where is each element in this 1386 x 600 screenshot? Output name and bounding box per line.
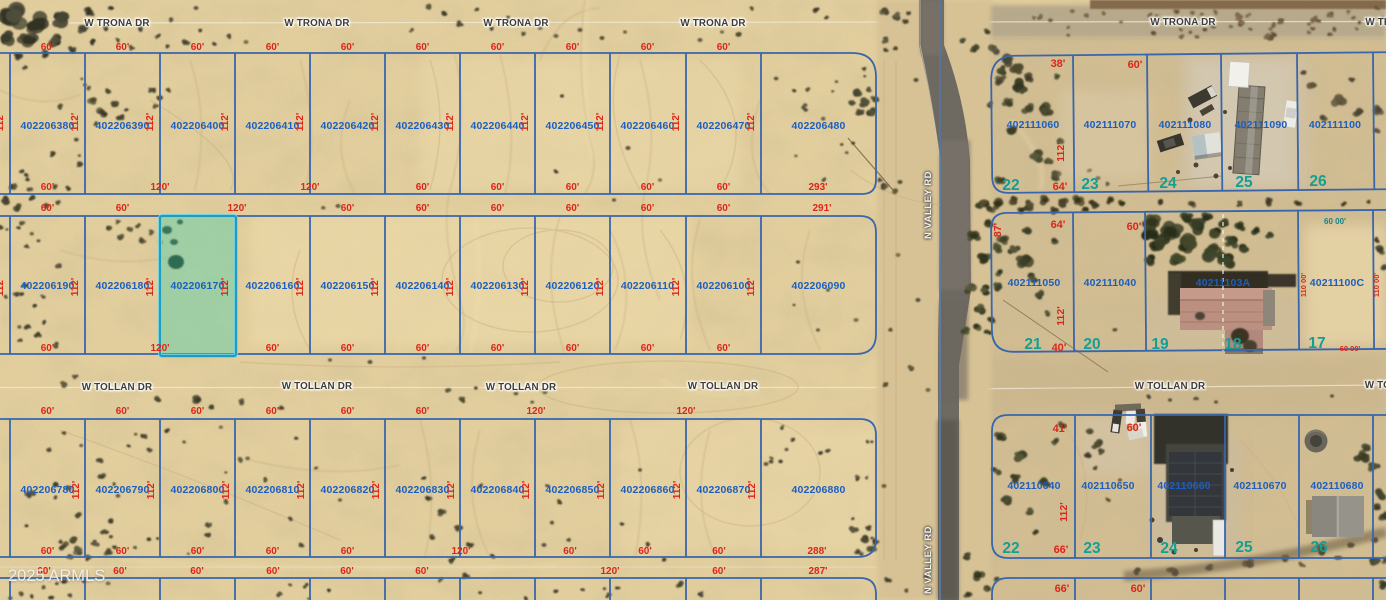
svg-text:112': 112' bbox=[746, 113, 757, 132]
svg-text:17: 17 bbox=[1308, 335, 1325, 352]
svg-text:60': 60' bbox=[41, 42, 55, 53]
svg-text:24: 24 bbox=[1160, 540, 1178, 557]
svg-text:112': 112' bbox=[672, 481, 683, 500]
svg-text:60 00': 60 00' bbox=[1340, 344, 1361, 353]
svg-text:60': 60' bbox=[266, 406, 280, 417]
svg-text:112': 112' bbox=[746, 278, 757, 297]
svg-text:112': 112' bbox=[0, 278, 6, 297]
svg-text:112': 112' bbox=[220, 278, 231, 297]
svg-text:402206850: 402206850 bbox=[546, 484, 600, 496]
svg-text:112': 112' bbox=[1058, 502, 1070, 521]
svg-text:22: 22 bbox=[1002, 540, 1019, 557]
svg-text:60': 60' bbox=[638, 546, 652, 557]
svg-text:60': 60' bbox=[491, 42, 505, 53]
svg-text:20: 20 bbox=[1083, 336, 1100, 353]
svg-text:60': 60' bbox=[41, 406, 55, 417]
svg-text:402206880: 402206880 bbox=[792, 484, 846, 496]
svg-text:402110640: 402110640 bbox=[1007, 480, 1060, 492]
svg-text:25: 25 bbox=[1235, 174, 1253, 191]
svg-text:112': 112' bbox=[596, 481, 607, 500]
svg-text:60': 60' bbox=[116, 546, 130, 557]
svg-text:60': 60' bbox=[491, 343, 505, 354]
svg-text:W TRONA DR: W TRONA DR bbox=[483, 18, 548, 29]
svg-text:W TRONA DR: W TRONA DR bbox=[1150, 17, 1215, 28]
svg-text:112': 112' bbox=[520, 113, 531, 132]
svg-text:60': 60' bbox=[416, 343, 430, 354]
svg-text:64': 64' bbox=[1051, 219, 1066, 231]
svg-text:60': 60' bbox=[266, 343, 280, 354]
svg-text:402206820: 402206820 bbox=[321, 484, 375, 496]
svg-text:24: 24 bbox=[1159, 175, 1177, 192]
svg-text:112': 112' bbox=[445, 278, 456, 297]
svg-text:60': 60' bbox=[191, 42, 205, 53]
svg-text:402206420: 402206420 bbox=[321, 120, 375, 132]
svg-text:402111040: 402111040 bbox=[1084, 277, 1137, 289]
svg-text:402206410: 402206410 bbox=[246, 120, 300, 132]
svg-text:60': 60' bbox=[41, 546, 55, 557]
svg-text:W TOLLAN DR: W TOLLAN DR bbox=[282, 381, 353, 392]
svg-text:402206830: 402206830 bbox=[396, 484, 450, 496]
svg-text:N VALLEY RD: N VALLEY RD bbox=[923, 171, 934, 239]
svg-text:402206090: 402206090 bbox=[792, 280, 846, 292]
svg-text:120': 120' bbox=[676, 406, 695, 417]
svg-text:112': 112' bbox=[446, 481, 457, 500]
svg-text:402206480: 402206480 bbox=[792, 120, 846, 132]
svg-text:W TOLLAN DR: W TOLLAN DR bbox=[1365, 380, 1386, 391]
svg-text:60': 60' bbox=[340, 566, 354, 577]
svg-text:402206150: 402206150 bbox=[321, 280, 375, 292]
svg-text:402110680: 402110680 bbox=[1310, 480, 1363, 492]
svg-text:112': 112' bbox=[295, 278, 306, 297]
svg-text:25: 25 bbox=[1235, 539, 1253, 556]
svg-text:112': 112' bbox=[521, 481, 532, 500]
svg-text:38': 38' bbox=[1051, 58, 1066, 70]
svg-text:60': 60' bbox=[712, 566, 726, 577]
svg-text:112': 112' bbox=[146, 481, 157, 500]
svg-text:402206870: 402206870 bbox=[697, 484, 751, 496]
svg-text:112': 112' bbox=[1055, 306, 1067, 325]
svg-text:402206860: 402206860 bbox=[621, 484, 675, 496]
svg-text:60': 60' bbox=[1127, 221, 1142, 233]
svg-text:W TRONA DR: W TRONA DR bbox=[284, 18, 349, 29]
svg-text:60': 60' bbox=[266, 42, 280, 53]
svg-text:60': 60' bbox=[415, 566, 429, 577]
svg-text:120': 120' bbox=[227, 203, 246, 214]
svg-text:402206190: 402206190 bbox=[21, 280, 75, 292]
svg-text:64': 64' bbox=[1053, 181, 1068, 193]
svg-text:60': 60' bbox=[266, 566, 280, 577]
svg-text:60': 60' bbox=[1127, 422, 1142, 434]
svg-text:60': 60' bbox=[1131, 583, 1146, 595]
svg-text:60': 60' bbox=[41, 343, 55, 354]
svg-text:60': 60' bbox=[491, 182, 505, 193]
svg-text:60': 60' bbox=[641, 182, 655, 193]
svg-text:60': 60' bbox=[341, 42, 355, 53]
svg-text:402206170: 402206170 bbox=[171, 280, 225, 292]
svg-text:2025 ARMLS: 2025 ARMLS bbox=[8, 567, 105, 585]
svg-text:60': 60' bbox=[341, 406, 355, 417]
svg-text:18: 18 bbox=[1224, 336, 1242, 353]
svg-text:120': 120' bbox=[150, 182, 169, 193]
svg-text:60': 60' bbox=[191, 406, 205, 417]
svg-text:40': 40' bbox=[1052, 342, 1067, 354]
svg-text:402111050: 402111050 bbox=[1008, 277, 1061, 289]
svg-text:60': 60' bbox=[416, 203, 430, 214]
svg-text:W TOLLAN DR: W TOLLAN DR bbox=[688, 381, 759, 392]
svg-text:112': 112' bbox=[595, 113, 606, 132]
svg-text:112': 112' bbox=[747, 481, 758, 500]
svg-text:60': 60' bbox=[566, 182, 580, 193]
svg-text:60': 60' bbox=[341, 343, 355, 354]
svg-text:60': 60' bbox=[341, 546, 355, 557]
svg-text:112': 112' bbox=[145, 113, 156, 132]
svg-text:402206800: 402206800 bbox=[171, 484, 225, 496]
svg-text:402110670: 402110670 bbox=[1233, 480, 1286, 492]
svg-text:402110660: 402110660 bbox=[1157, 480, 1210, 492]
svg-text:402206430: 402206430 bbox=[396, 120, 450, 132]
svg-text:112': 112' bbox=[595, 278, 606, 297]
svg-text:26: 26 bbox=[1309, 173, 1327, 190]
svg-text:120': 120' bbox=[600, 566, 619, 577]
svg-text:112': 112' bbox=[1055, 142, 1067, 161]
svg-text:60': 60' bbox=[491, 203, 505, 214]
svg-text:60': 60' bbox=[717, 203, 731, 214]
svg-text:110 00': 110 00' bbox=[1299, 273, 1308, 298]
svg-text:112': 112' bbox=[445, 113, 456, 132]
svg-text:W TOLLAN DR: W TOLLAN DR bbox=[486, 382, 557, 393]
svg-text:112': 112' bbox=[221, 481, 232, 500]
svg-text:287': 287' bbox=[808, 566, 827, 577]
svg-text:402206100: 402206100 bbox=[697, 280, 751, 292]
svg-text:60': 60' bbox=[116, 203, 130, 214]
svg-text:60': 60' bbox=[717, 42, 731, 53]
svg-text:120': 120' bbox=[300, 182, 319, 193]
svg-text:402206460: 402206460 bbox=[621, 120, 675, 132]
svg-text:60': 60' bbox=[641, 343, 655, 354]
svg-text:41': 41' bbox=[1053, 423, 1068, 435]
svg-text:288': 288' bbox=[807, 546, 826, 557]
svg-text:60': 60' bbox=[641, 203, 655, 214]
svg-text:402110650: 402110650 bbox=[1081, 480, 1134, 492]
svg-text:112': 112' bbox=[520, 278, 531, 297]
svg-text:60': 60' bbox=[113, 566, 127, 577]
svg-text:60': 60' bbox=[116, 406, 130, 417]
svg-text:112': 112' bbox=[70, 278, 81, 297]
svg-text:402206840: 402206840 bbox=[471, 484, 525, 496]
svg-text:402111070: 402111070 bbox=[1084, 119, 1137, 131]
svg-text:W TRONA DR: W TRONA DR bbox=[84, 18, 149, 29]
svg-text:402206160: 402206160 bbox=[246, 280, 300, 292]
svg-text:402111090: 402111090 bbox=[1235, 119, 1288, 131]
svg-text:402206180: 402206180 bbox=[96, 280, 150, 292]
svg-text:60': 60' bbox=[641, 42, 655, 53]
svg-text:60': 60' bbox=[266, 546, 280, 557]
svg-text:60': 60' bbox=[416, 42, 430, 53]
svg-text:402206120: 402206120 bbox=[546, 280, 600, 292]
svg-text:23: 23 bbox=[1083, 540, 1101, 557]
svg-text:110 00': 110 00' bbox=[1372, 273, 1381, 298]
svg-text:60': 60' bbox=[566, 42, 580, 53]
svg-text:60': 60' bbox=[341, 203, 355, 214]
svg-text:60 00': 60 00' bbox=[1324, 217, 1346, 226]
svg-text:60': 60' bbox=[191, 546, 205, 557]
svg-text:402111080: 402111080 bbox=[1159, 119, 1212, 131]
svg-text:402206790: 402206790 bbox=[96, 484, 150, 496]
svg-text:40211100C: 40211100C bbox=[1310, 277, 1365, 289]
svg-text:402206380: 402206380 bbox=[21, 120, 75, 132]
svg-text:402206780: 402206780 bbox=[21, 484, 75, 496]
svg-text:23: 23 bbox=[1081, 176, 1099, 193]
svg-text:112': 112' bbox=[295, 113, 306, 132]
svg-text:402111100: 402111100 bbox=[1309, 119, 1361, 131]
svg-text:26: 26 bbox=[1310, 539, 1328, 556]
svg-text:60': 60' bbox=[712, 546, 726, 557]
svg-text:N VALLEY RD: N VALLEY RD bbox=[923, 526, 934, 594]
svg-text:60': 60' bbox=[416, 182, 430, 193]
svg-text:402206390: 402206390 bbox=[96, 120, 150, 132]
svg-text:60': 60' bbox=[41, 203, 55, 214]
svg-text:60': 60' bbox=[563, 546, 577, 557]
svg-text:120': 120' bbox=[526, 406, 545, 417]
svg-text:402206450: 402206450 bbox=[546, 120, 600, 132]
svg-text:402206470: 402206470 bbox=[697, 120, 751, 132]
svg-text:60': 60' bbox=[566, 203, 580, 214]
svg-text:60': 60' bbox=[1128, 59, 1143, 71]
svg-text:112': 112' bbox=[145, 278, 156, 297]
svg-text:112': 112' bbox=[671, 113, 682, 132]
svg-text:402206400: 402206400 bbox=[171, 120, 225, 132]
svg-text:402206130: 402206130 bbox=[471, 280, 525, 292]
svg-text:60': 60' bbox=[717, 182, 731, 193]
svg-text:402206810: 402206810 bbox=[246, 484, 300, 496]
svg-text:W TOLLAN DR: W TOLLAN DR bbox=[82, 382, 153, 393]
svg-text:W TRONA DR: W TRONA DR bbox=[680, 18, 745, 29]
svg-text:87': 87' bbox=[992, 223, 1004, 237]
svg-text:112': 112' bbox=[71, 481, 82, 500]
svg-text:60': 60' bbox=[717, 343, 731, 354]
svg-text:60': 60' bbox=[190, 566, 204, 577]
svg-text:112': 112' bbox=[220, 113, 231, 132]
svg-text:291': 291' bbox=[812, 203, 831, 214]
svg-text:112': 112' bbox=[371, 481, 382, 500]
svg-text:60': 60' bbox=[41, 182, 55, 193]
svg-text:120': 120' bbox=[451, 546, 470, 557]
svg-text:21: 21 bbox=[1024, 336, 1042, 353]
svg-text:W TOLLAN DR: W TOLLAN DR bbox=[1135, 381, 1206, 392]
svg-text:60': 60' bbox=[116, 42, 130, 53]
svg-text:66': 66' bbox=[1054, 544, 1069, 556]
svg-text:293': 293' bbox=[808, 182, 827, 193]
svg-text:112': 112' bbox=[370, 113, 381, 132]
svg-text:402206140: 402206140 bbox=[396, 280, 450, 292]
svg-text:402206440: 402206440 bbox=[471, 120, 525, 132]
svg-text:402206110: 402206110 bbox=[621, 280, 674, 292]
svg-text:22: 22 bbox=[1002, 177, 1019, 194]
svg-text:60': 60' bbox=[566, 343, 580, 354]
svg-text:120': 120' bbox=[150, 343, 169, 354]
svg-text:60': 60' bbox=[416, 406, 430, 417]
svg-text:112': 112' bbox=[370, 278, 381, 297]
svg-text:40211103A: 40211103A bbox=[1196, 277, 1251, 289]
svg-text:112': 112' bbox=[671, 278, 682, 297]
svg-text:19: 19 bbox=[1151, 336, 1169, 353]
svg-text:W TRONA DR: W TRONA DR bbox=[1365, 17, 1386, 28]
svg-text:112': 112' bbox=[296, 481, 307, 500]
svg-text:112': 112' bbox=[70, 113, 81, 132]
svg-text:112': 112' bbox=[0, 113, 6, 132]
svg-text:66': 66' bbox=[1055, 583, 1070, 595]
svg-text:402111060: 402111060 bbox=[1007, 119, 1060, 131]
